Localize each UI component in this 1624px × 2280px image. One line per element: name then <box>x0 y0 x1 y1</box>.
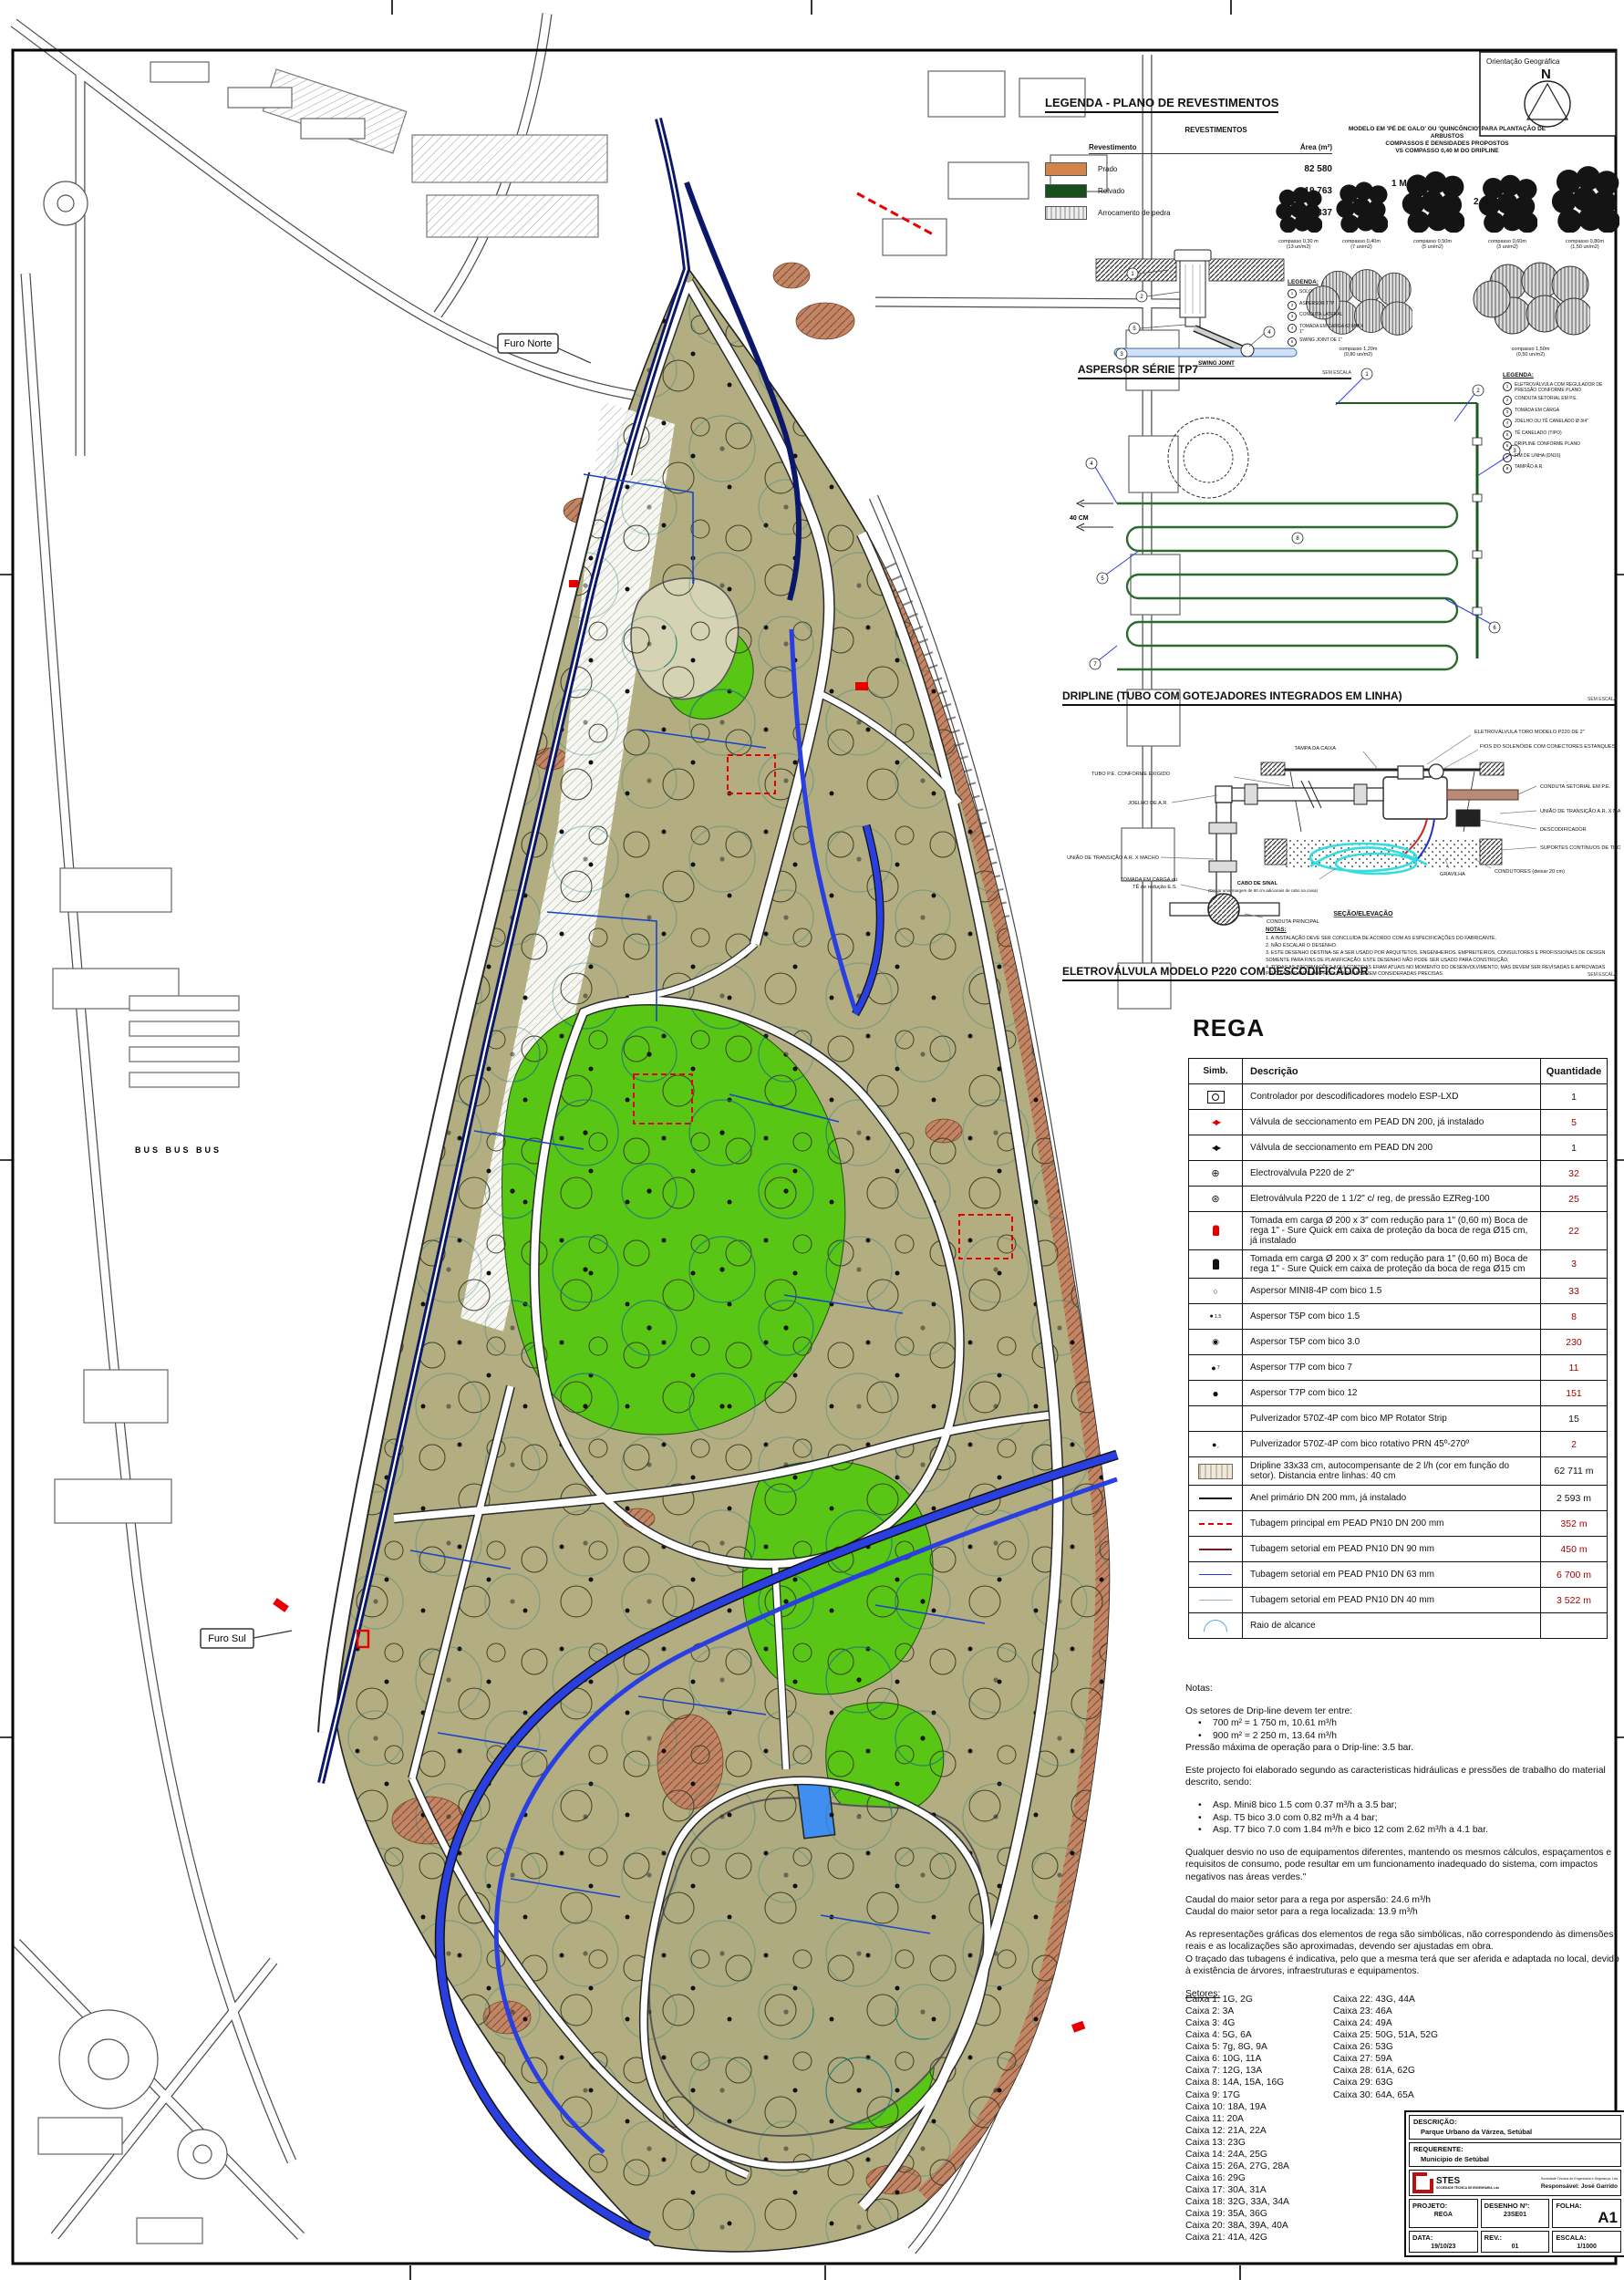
rega-symbol-icon <box>1211 1193 1219 1205</box>
caixa-item: Caixa 20: 38A, 39A, 40A <box>1185 2220 1329 2232</box>
plant-title-3: COMPASSOS E DENSIDADES PROPOSTOS <box>1275 140 1619 148</box>
setores-col-1: Caixa 1: 1G, 2GCaixa 2: 3ACaixa 3: 4GCai… <box>1185 1994 1329 2244</box>
svg-text:TUBO P.E. CONFORME EXIGIDO: TUBO P.E. CONFORME EXIGIDO <box>1091 772 1171 777</box>
rega-table-row: Aspersor T5P com bico 3.0 230 <box>1189 1329 1607 1354</box>
legend-item: 5 SWING JOINT DE 1" <box>1288 337 1368 347</box>
rega-table-row: Anel primário DN 200 mm, já instalado 2 … <box>1189 1485 1607 1510</box>
rega-qty: 2 593 m <box>1540 1486 1607 1510</box>
legend-item: 1 ELETROVÁLVULA COM REGULADOR DE PRESSÃO… <box>1503 382 1618 394</box>
swatch <box>1045 206 1087 220</box>
svg-text:CONDUTORES (deixar 20 cm): CONDUTORES (deixar 20 cm) <box>1495 869 1565 875</box>
aspersor-legend: LEGENDA: 1 SOLO 2 ASPERSOR T7P 3 CONDUTA… <box>1288 279 1368 347</box>
desc-label: DESCRIÇÃO: <box>1413 2118 1617 2126</box>
compass-title: Orientação Geográfica <box>1486 57 1560 66</box>
rega-desc: Válvula de seccionamento em PEAD DN 200,… <box>1243 1110 1540 1135</box>
setores-col-2: Caixa 22: 43G, 44ACaixa 23: 46ACaixa 24:… <box>1333 1994 1488 2101</box>
rega-table-row: Tomada em carga Ø 200 x 3" com redução p… <box>1189 1211 1607 1249</box>
col-revestimento: Revestimento <box>1089 143 1136 151</box>
caixa-item: Caixa 1: 1G, 2G <box>1185 1994 1329 2005</box>
legend-item: 8 TAMPÃO A.R. <box>1503 464 1618 473</box>
requerente: Municipio de Setúbal <box>1413 2153 1617 2164</box>
caixa-item: Caixa 21: 41A, 42G <box>1185 2232 1329 2244</box>
legend-item: 6 DRIPLINE CONFORME PLANO <box>1503 441 1618 451</box>
svg-text:FIOS DO SOLENÓIDE COM CONECTOR: FIOS DO SOLENÓIDE COM CONECTORES ESTANQU… <box>1480 743 1616 750</box>
rega-symbol-icon <box>1204 1620 1227 1632</box>
caixa-item: Caixa 25: 50G, 51A, 52G <box>1333 2029 1488 2041</box>
caixa-item: Caixa 3: 4G <box>1185 2017 1329 2029</box>
rega-symbol-icon <box>1199 1600 1232 1601</box>
rega-table: Simb. Descrição Quantidade Controlador p… <box>1188 1058 1608 1639</box>
svg-text:(Deixar uma margem de 80 cm ad: (Deixar uma margem de 80 cm adicionais d… <box>1208 888 1319 893</box>
valve-drawing <box>1161 735 1536 925</box>
data-label: DATA: <box>1412 2233 1433 2242</box>
north-label: N <box>1541 67 1551 82</box>
valve-title: ELETROVÁLVULA MODELO P220 COM DESCODIFIC… <box>1062 965 1368 978</box>
dripline-balloons: 1 2 4 5 3 6 7 8 <box>1086 368 1520 669</box>
dripline-legend: LEGENDA: 1 ELETROVÁLVULA COM REGULADOR D… <box>1503 372 1618 473</box>
rega-desc: Aspersor MINI8-4P com bico 1.5 <box>1243 1279 1540 1303</box>
caixa-item: Caixa 6: 10G, 11A <box>1185 2053 1329 2065</box>
svg-text:TÊ de redução E.S.: TÊ de redução E.S. <box>1133 883 1177 890</box>
swatch <box>1045 184 1087 198</box>
valve-labels: TAMPA DA CAIXA ELETROVÁLVULA TORO MODELO… <box>1067 729 1620 925</box>
note-paragraph: 700 m² = 1 750 m, 10.61 m³/h <box>1185 1717 1621 1730</box>
caixa-item: Caixa 12: 21A, 22A <box>1185 2125 1329 2137</box>
valve-title-bar: ELETROVÁLVULA MODELO P220 COM DESCODIFIC… <box>1062 965 1617 981</box>
rega-table-row: Tubagem setorial em PEAD PN10 DN 90 mm 4… <box>1189 1536 1607 1561</box>
note-paragraph: Notas: <box>1185 1683 1621 1695</box>
note-paragraph: Caudal do maior setor para a rega locali… <box>1185 1906 1621 1919</box>
rega-symbol-icon <box>1213 1287 1217 1296</box>
caixa-item: Caixa 24: 49A <box>1333 2017 1488 2029</box>
shrub-cluster-icon <box>1401 169 1464 233</box>
rega-table-row: Tubagem principal em PEAD PN10 DN 200 mm… <box>1189 1510 1607 1536</box>
rega-desc: Controlador por descodificadores modelo … <box>1243 1084 1540 1109</box>
bus-label: BUS BUS BUS <box>135 1145 222 1155</box>
caixa-item: Caixa 17: 30A, 31A <box>1185 2184 1329 2196</box>
responsible: Responsável: José Garrido <box>1502 2183 1618 2190</box>
caixa-item: Caixa 16: 29G <box>1185 2172 1329 2184</box>
svg-text:CONDUTA SETORIAL EM P.E.: CONDUTA SETORIAL EM P.E. <box>1540 784 1611 790</box>
note-paragraph: Asp. T7 bico 7.0 com 1.84 m³/h e bico 12… <box>1185 1824 1621 1837</box>
folha-label: FOLHA: <box>1556 2202 1581 2210</box>
rev-label: REV.: <box>1484 2233 1502 2242</box>
rega-qty: 5 <box>1540 1110 1607 1135</box>
note-paragraph: Asp. T5 bico 3.0 com 0.82 m³/h a 4 bar; <box>1185 1812 1621 1825</box>
caixa-item: Caixa 15: 26A, 27G, 28A <box>1185 2161 1329 2172</box>
svg-text:UNIÃO DE TRANSIÇÃO A.R. X MACH: UNIÃO DE TRANSIÇÃO A.R. X MACHO <box>1540 808 1620 814</box>
note-paragraph: Caudal do maior setor para a rega por as… <box>1185 1894 1621 1907</box>
svg-text:JOELHO DE A.R.: JOELHO DE A.R. <box>1128 801 1168 806</box>
rega-symbol-icon <box>1199 1574 1232 1575</box>
rega-symbol-icon <box>1212 1440 1219 1449</box>
rega-table-row: Pulverizador 570Z-4P com bico MP Rotator… <box>1189 1405 1607 1431</box>
shrub-cluster-icon <box>1275 185 1322 233</box>
rega-heading: REGA <box>1193 1014 1265 1042</box>
rega-desc: Electrovalvula P220 de 2" <box>1243 1161 1540 1186</box>
rega-table-row: Tomada em carga Ø 200 x 3" com redução p… <box>1189 1249 1607 1278</box>
svg-text:ELETROVÁLVULA TORO MODELO P22: ELETROVÁLVULA TORO MODELO P220 DE 2" <box>1474 729 1585 735</box>
rega-symbol-icon <box>1207 1091 1225 1104</box>
svg-text:UNIÃO DE TRANSIÇÃO A.R. X MACH: UNIÃO DE TRANSIÇÃO A.R. X MACHO <box>1067 855 1160 861</box>
rega-table-row: Válvula de seccionamento em PEAD DN 200,… <box>1189 1109 1607 1135</box>
caixa-item: Caixa 30: 64A, 65A <box>1333 2089 1488 2101</box>
rega-desc: Tomada em carga Ø 200 x 3" com redução p… <box>1243 1212 1540 1249</box>
caixa-item: Caixa 19: 35A, 36G <box>1185 2208 1329 2220</box>
rega-desc: Tomada em carga Ø 200 x 3" com redução p… <box>1243 1250 1540 1278</box>
caixa-item: Caixa 29: 63G <box>1333 2077 1488 2088</box>
rega-table-row: Válvula de seccionamento em PEAD DN 200 … <box>1189 1135 1607 1160</box>
rega-desc: Dripline 33x33 cm, autocompensante de 2 … <box>1243 1457 1540 1485</box>
rega-symbol-icon <box>1199 1523 1232 1525</box>
rega-desc: Pulverizador 570Z-4P com bico rotativo P… <box>1243 1432 1540 1456</box>
svg-text:SEÇÃO/ELEVAÇÃO: SEÇÃO/ELEVAÇÃO <box>1333 909 1393 917</box>
caixa-item: Caixa 11: 20A <box>1185 2113 1329 2125</box>
note-paragraph: Este projecto foi elaborado segundo as c… <box>1185 1765 1621 1789</box>
rega-qty: 25 <box>1540 1187 1607 1211</box>
dripline-dim: 40 CM <box>1070 515 1089 522</box>
north-compass: Orientação Geográfica N <box>1480 52 1616 136</box>
rega-table-row: Tubagem setorial em PEAD PN10 DN 40 mm 3… <box>1189 1587 1607 1612</box>
rega-desc: Aspersor T5P com bico 3.0 <box>1243 1330 1540 1354</box>
rega-symbol-icon <box>1212 1337 1219 1347</box>
rega-desc: Anel primário DN 200 mm, já instalado <box>1243 1486 1540 1510</box>
dim-2m: 2 M <box>1474 197 1489 207</box>
rega-symbol-icon <box>1212 1387 1218 1400</box>
legend-item: 1 SOLO <box>1288 289 1368 298</box>
saddle-clamp <box>1208 894 1239 925</box>
caixa-item: Caixa 14: 24A, 25G <box>1185 2149 1329 2161</box>
rega-desc: Tubagem setorial em PEAD PN10 DN 63 mm <box>1243 1562 1540 1587</box>
rega-qty: 15 <box>1540 1406 1607 1431</box>
logo-name: STES <box>1436 2177 1499 2186</box>
rega-qty: 450 m <box>1540 1537 1607 1561</box>
caixa-item: Caixa 9: 17G <box>1185 2089 1329 2101</box>
shrub-cluster-icon <box>1335 180 1388 233</box>
desenho-label: DESENHO Nº: <box>1484 2202 1530 2210</box>
svg-text:DESCODIFICADOR: DESCODIFICADOR <box>1540 827 1587 833</box>
rega-qty <box>1540 1613 1607 1638</box>
company-fullname: - Sociedade Técnica de Engenharia e Segu… <box>1502 2177 1618 2181</box>
rega-qty: 62 711 m <box>1540 1457 1607 1485</box>
folha-value: A1 <box>1556 2210 1618 2225</box>
dim-1m: 1 M <box>1391 179 1407 189</box>
rega-table-row: Electrovalvula P220 de 2" 32 <box>1189 1160 1607 1186</box>
caixa-item: Caixa 28: 61A, 62G <box>1333 2065 1488 2077</box>
dripline-title: DRIPLINE (TUBO COM GOTEJADORES INTEGRADO… <box>1062 689 1402 702</box>
caixa-item: Caixa 23: 46A <box>1333 2005 1488 2017</box>
rega-symbol-icon <box>1198 1464 1233 1479</box>
svg-text:CABO DE SINAL: CABO DE SINAL <box>1237 881 1278 886</box>
project-description: Parque Urbano da Várzea, Setúbal <box>1413 2126 1617 2137</box>
caixa-item: Caixa 8: 14A, 15A, 16G <box>1185 2077 1329 2088</box>
rev-value: 01 <box>1484 2244 1546 2250</box>
rega-qty: 3 522 m <box>1540 1588 1607 1612</box>
svg-text:SUPORTES CONTÍNUOS DE TIJOLO: SUPORTES CONTÍNUOS DE TIJOLO <box>1540 845 1620 851</box>
escala-label: ESCALA: <box>1556 2233 1586 2242</box>
svg-text:GRAVILHA: GRAVILHA <box>1440 872 1465 877</box>
valve-note: 1. A INSTALAÇÃO DEVE SER CONCLUÍDA DE AC… <box>1266 936 1612 942</box>
rega-table-row: Pulverizador 570Z-4P com bico rotativo P… <box>1189 1431 1607 1456</box>
rega-qty: 151 <box>1540 1381 1607 1405</box>
notes-block: Notas: Os setores de Drip-line devem ter… <box>1185 1683 1621 2001</box>
rega-symbol-icon <box>1199 1498 1232 1499</box>
note-paragraph: As representações gráficas dos elementos… <box>1185 1929 1621 1954</box>
rega-desc: Válvula de seccionamento em PEAD DN 200 <box>1243 1135 1540 1160</box>
legend-item: 5 TÊ CANELADO (TIPO) <box>1503 430 1618 440</box>
rega-symbol-icon <box>1212 1118 1219 1126</box>
stes-logo-icon <box>1412 2172 1433 2193</box>
valve-diagram: TAMPA DA CAIXA ELETROVÁLVULA TORO MODELO… <box>1062 722 1620 939</box>
projeto-label: PROJETO: <box>1412 2202 1447 2210</box>
furo-norte-label: Furo Norte <box>504 338 553 349</box>
rega-table-row: Controlador por descodificadores modelo … <box>1189 1083 1607 1109</box>
rega-desc: Eletroválvula P220 de 1 1/2" c/ reg, de … <box>1243 1187 1540 1211</box>
plant-title-1: MODELO EM 'PÉ DE GALO' OU 'QUINCÔNCIO' P… <box>1275 126 1619 133</box>
rega-symbol-icon <box>1211 1363 1220 1373</box>
rega-desc: Raio de alcance <box>1243 1613 1540 1638</box>
rega-desc: Aspersor T7P com bico 12 <box>1243 1381 1540 1405</box>
rega-table-row: Tubagem setorial em PEAD PN10 DN 63 mm 6… <box>1189 1561 1607 1587</box>
note-paragraph: O traçado das tubagens é indicativa, pel… <box>1185 1954 1621 1978</box>
rega-desc: Tubagem setorial em PEAD PN10 DN 40 mm <box>1243 1588 1540 1612</box>
rega-desc: Tubagem setorial em PEAD PN10 DN 90 mm <box>1243 1537 1540 1561</box>
rega-qty: 230 <box>1540 1330 1607 1354</box>
projeto-value: REGA <box>1412 2212 1474 2218</box>
valve-note: 2. NÃO ESCALAR O DESENHO. <box>1266 943 1612 949</box>
shrub-cluster-large: compasso 1,50m(0,50 un/m2) <box>1472 258 1590 358</box>
rega-desc: Aspersor T7P com bico 7 <box>1243 1355 1540 1380</box>
dripline-drawing <box>1077 378 1511 669</box>
logo-subtitle: SOCIEDADE TÉCNICA DE ENGENHARIA, Lda <box>1436 2186 1499 2190</box>
swatch <box>1045 162 1087 176</box>
svg-text:CONDUTA PRINCIPAL: CONDUTA PRINCIPAL <box>1267 919 1319 925</box>
caixa-item: Caixa 2: 3A <box>1185 2005 1329 2017</box>
tree-canopy-icon <box>1168 418 1248 498</box>
valve-scale-note: SEM ESCALA <box>1588 972 1617 978</box>
rega-table-row: Aspersor T7P com bico 7 11 <box>1189 1354 1607 1380</box>
caixa-item: Caixa 13: 23G <box>1185 2137 1329 2149</box>
caixa-item: Caixa 22: 43G, 44A <box>1333 1994 1488 2005</box>
company-logo-row: STES SOCIEDADE TÉCNICA DE ENGENHARIA, Ld… <box>1409 2170 1621 2196</box>
legend-item: 7 FIM DE LINHA (DN16) <box>1503 453 1618 462</box>
rega-qty: 2 <box>1540 1432 1607 1456</box>
legenda-title: LEGENDA - PLANO DE REVESTIMENTOS <box>1045 96 1278 113</box>
note-paragraph: Qualquer desvio no uso de equipamentos d… <box>1185 1847 1621 1884</box>
caixa-item: Caixa 5: 7g, 8G, 9A <box>1185 2041 1329 2053</box>
rega-desc: Pulverizador 570Z-4P com bico MP Rotator… <box>1243 1406 1540 1431</box>
data-value: 19/10/23 <box>1412 2244 1474 2250</box>
rega-desc: Tubagem principal em PEAD PN10 DN 200 mm <box>1243 1511 1540 1536</box>
plant-title-4: VS COMPASSO 0,40 M DO DRIPLINE <box>1275 148 1619 155</box>
svg-text:TOMADA EM CARGA ou: TOMADA EM CARGA ou <box>1121 877 1177 883</box>
caixa-item: Caixa 7: 12G, 13A <box>1185 2065 1329 2077</box>
rega-table-row: Eletroválvula P220 de 1 1/2" c/ reg, de … <box>1189 1186 1607 1211</box>
furo-sul-label: Furo Sul <box>208 1633 246 1644</box>
legend-item: 2 CONDUTA SETORIAL EM P.E. <box>1503 396 1618 405</box>
rega-qty: 1 <box>1540 1135 1607 1160</box>
valve-note: 3. ESTE DESENHO DESTINA-SE A SER USADO P… <box>1266 950 1612 963</box>
rega-symbol-icon <box>1199 1549 1232 1550</box>
rega-table-row: Aspersor T5P com bico 1.5 8 <box>1189 1303 1607 1329</box>
rega-qty: 22 <box>1540 1212 1607 1249</box>
legend-item: 4 TOMADA EM CARGA 63 MM X 1" <box>1288 324 1368 336</box>
desenho-value: 23SE01 <box>1484 2212 1546 2218</box>
dripline-scale-note: SEM ESCALA <box>1588 697 1617 702</box>
shrub-cluster-icon <box>1550 163 1619 233</box>
note-paragraph: Os setores de Drip-line devem ter entre: <box>1185 1705 1621 1718</box>
shrub-cluster: compasso 0,80m(1,50 un/m2) <box>1550 163 1619 251</box>
escala-value: 1/1000 <box>1556 2244 1618 2250</box>
rega-symbol-icon <box>1211 1167 1219 1179</box>
plant-title-2: ARBUSTOS <box>1275 133 1619 140</box>
rega-qty: 6 700 m <box>1540 1562 1607 1587</box>
rega-qty: 8 <box>1540 1304 1607 1329</box>
shrub-cluster-large-icon <box>1472 258 1590 340</box>
dripline-coil <box>1117 503 1457 669</box>
shrub-cluster: compasso 0,30 m(13 un/m2) <box>1275 185 1322 251</box>
dripline-title-bar: DRIPLINE (TUBO COM GOTEJADORES INTEGRADO… <box>1062 689 1617 706</box>
caixa-item: Caixa 26: 53G <box>1333 2041 1488 2053</box>
rega-symbol-icon <box>1212 1144 1219 1152</box>
rega-qty: 1 <box>1540 1084 1607 1109</box>
rega-table-row: Dripline 33x33 cm, autocompensante de 2 … <box>1189 1456 1607 1485</box>
caixa-item: Caixa 27: 59A <box>1333 2053 1488 2065</box>
note-paragraph: Asp. Mini8 bico 1.5 com 0.37 m³/h a 3.5 … <box>1185 1799 1621 1812</box>
rega-symbol-icon <box>1213 1226 1219 1236</box>
svg-text:TAMPA DA CAIXA: TAMPA DA CAIXA <box>1295 746 1337 751</box>
rega-desc: Aspersor T5P com bico 1.5 <box>1243 1304 1540 1329</box>
title-block: DESCRIÇÃO: Parque Urbano da Várzea, Setú… <box>1404 2110 1624 2257</box>
note-paragraph: Pressão máxima de operação para o Drip-l… <box>1185 1742 1621 1755</box>
rega-symbol-icon <box>1213 1259 1219 1270</box>
shrub-cluster: compasso 0,50m(5 un/m2) <box>1401 169 1464 251</box>
note-paragraph: 900 m² = 2 250 m, 13.64 m³/h <box>1185 1730 1621 1743</box>
rega-table-row: Aspersor T7P com bico 12 151 <box>1189 1380 1607 1405</box>
legend-item: 3 TOMADA EM CARGA <box>1503 408 1618 417</box>
legend-item: 3 CONDUTA LATERAL <box>1288 312 1368 321</box>
rega-table-header: Simb. Descrição Quantidade <box>1189 1059 1607 1083</box>
rega-qty: 32 <box>1540 1161 1607 1186</box>
rega-qty: 33 <box>1540 1279 1607 1303</box>
legend-item: 4 JOELHO OU TÊ CANELADO Ø 3/4" <box>1503 419 1618 428</box>
valve-body <box>1383 777 1447 819</box>
rega-table-row: Aspersor MINI8-4P com bico 1.5 33 <box>1189 1278 1607 1303</box>
requerente-label: REQUERENTE: <box>1413 2145 1617 2153</box>
rega-qty: 11 <box>1540 1355 1607 1380</box>
legend-item: 2 ASPERSOR T7P <box>1288 301 1368 310</box>
caixa-item: Caixa 4: 5G, 6A <box>1185 2029 1329 2041</box>
rega-qty: 3 <box>1540 1250 1607 1278</box>
rega-symbol-icon <box>1210 1313 1222 1320</box>
rega-qty: 352 m <box>1540 1511 1607 1536</box>
shrub-cluster: compasso 0,40m(7 un/m2) <box>1335 180 1388 251</box>
shrub-cluster: compasso 0,60m(3 un/m2) <box>1477 172 1537 251</box>
caixa-item: Caixa 18: 32G, 33A, 34A <box>1185 2196 1329 2208</box>
rega-table-row: Raio de alcance <box>1189 1612 1607 1638</box>
aspersor-drawing <box>1096 250 1297 357</box>
caixa-item: Caixa 10: 18A, 19A <box>1185 2101 1329 2113</box>
